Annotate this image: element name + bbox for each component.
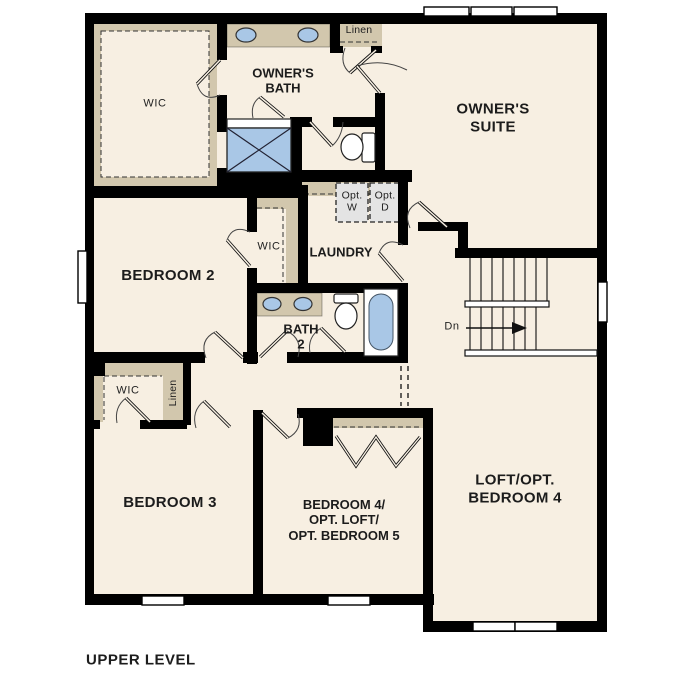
- shower-icon: [227, 119, 291, 172]
- window: [515, 622, 557, 631]
- room-label-linen-upper: Linen: [346, 24, 373, 36]
- room-label-owners-suite: OWNER'S SUITE: [456, 100, 529, 135]
- room-label-owners-wic: WIC: [143, 98, 166, 111]
- label-opt-washer: Opt. W: [342, 190, 363, 215]
- floor-plan: WIC OWNER'S BATH Linen OWNER'S SUITE Opt…: [0, 0, 687, 687]
- room-label-bedroom-2: BEDROOM 2: [121, 267, 215, 285]
- window: [473, 622, 515, 631]
- window: [78, 251, 87, 303]
- window: [142, 596, 184, 605]
- bathtub-icon: [364, 289, 398, 356]
- room-label-owners-bath: OWNER'S BATH: [252, 66, 314, 97]
- room-label-bedroom3-wic: WIC: [116, 385, 139, 398]
- floor-plan-drawing: [0, 0, 687, 687]
- room-label-bath-2: BATH 2: [283, 322, 318, 353]
- window: [598, 282, 607, 322]
- room-label-linen-lower: Linen: [167, 380, 179, 407]
- room-label-laundry: LAUNDRY: [309, 244, 372, 259]
- window: [328, 596, 370, 605]
- window: [424, 7, 469, 16]
- label-opt-dryer: Opt. D: [375, 190, 396, 215]
- room-label-bedroom2-wic: WIC: [257, 241, 280, 254]
- label-stairs-down: Dn: [444, 321, 459, 334]
- toilet-icon: [341, 133, 375, 162]
- toilet-icon: [334, 294, 358, 329]
- window: [471, 7, 512, 16]
- room-label-bedroom-4: BEDROOM 4/ OPT. LOFT/ OPT. BEDROOM 5: [288, 497, 399, 543]
- window: [514, 7, 557, 16]
- room-label-bedroom-3: BEDROOM 3: [123, 494, 217, 512]
- room-label-loft: LOFT/OPT. BEDROOM 4: [468, 471, 562, 506]
- plan-title: UPPER LEVEL: [86, 652, 196, 669]
